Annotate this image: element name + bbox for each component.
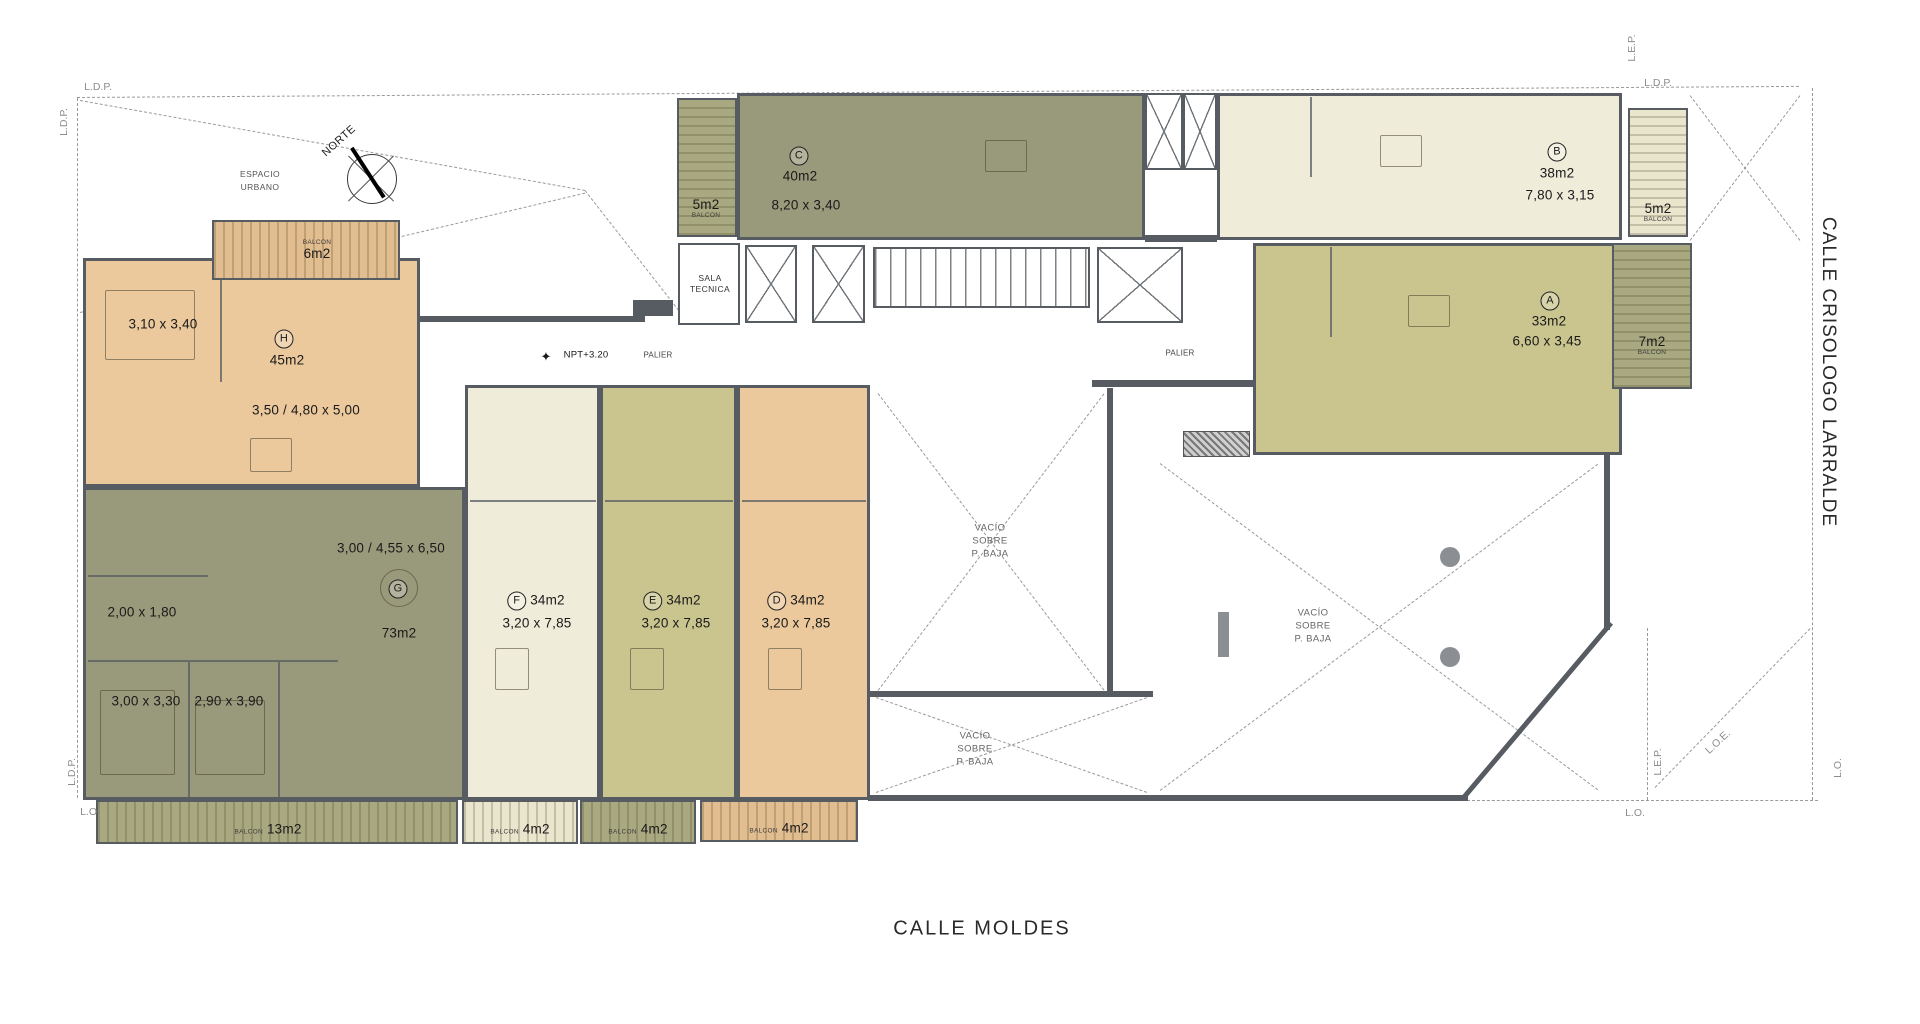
unit-a-block bbox=[1253, 243, 1622, 455]
unit-e-letter: E bbox=[643, 592, 662, 611]
wall-divider bbox=[220, 262, 222, 382]
wall-divider bbox=[742, 500, 866, 502]
unit-e-dims: 3,20 x 7,85 bbox=[641, 616, 710, 631]
unit-e-area: 34m2 bbox=[666, 593, 701, 608]
boundary-label-lo-bottom-left: L.O. bbox=[80, 806, 100, 818]
balcony-tag: BALCON bbox=[692, 212, 721, 219]
wall bbox=[1092, 380, 1254, 387]
balcony-a-label: 7m2 BALCON bbox=[1638, 334, 1667, 356]
unit-c-badge: C bbox=[790, 147, 809, 166]
wall bbox=[870, 691, 1153, 697]
espacio-urbano-label: ESPACIO URBANO bbox=[240, 168, 280, 194]
sala-line: SALA bbox=[690, 273, 730, 284]
elevator-icon bbox=[745, 245, 797, 323]
unit-d-area: 34m2 bbox=[790, 593, 825, 608]
balcony-tag: BALCON bbox=[608, 829, 637, 836]
unit-a-letter: A bbox=[1541, 292, 1560, 311]
balcony-area: 7m2 bbox=[1638, 334, 1667, 349]
balcony-tag: BALCON bbox=[303, 239, 332, 246]
balcony-area: 4m2 bbox=[641, 822, 668, 837]
void-label-1: VACÍO SOBRE P. BAJA bbox=[972, 522, 1009, 561]
unit-e-badge: E 34m2 bbox=[643, 592, 701, 611]
boundary-label-lo-bottom-right: L.O. bbox=[1625, 807, 1645, 819]
wall-divider bbox=[278, 662, 280, 798]
shaft-icon bbox=[1145, 93, 1183, 170]
balcony-a bbox=[1612, 243, 1692, 389]
unit-c-block bbox=[737, 93, 1145, 240]
unit-f-badge: F 34m2 bbox=[507, 592, 565, 611]
espacio-line: ESPACIO bbox=[240, 168, 280, 181]
boundary-label-ldp-top-right: L.D.P. bbox=[1644, 77, 1672, 89]
elevator-icon bbox=[1097, 247, 1183, 323]
balcony-area: 5m2 bbox=[1644, 201, 1673, 216]
sala-tecnica-label: SALA TECNICA bbox=[690, 273, 730, 295]
unit-g-room-dims: 2,00 x 1,80 bbox=[107, 605, 176, 620]
unit-f-area: 34m2 bbox=[530, 593, 565, 608]
balcony-c-label: 5m2 BALCON bbox=[692, 197, 721, 219]
compass-label: NORTE bbox=[320, 123, 358, 159]
void-line: SOBRE bbox=[972, 535, 1009, 548]
shaft-icon bbox=[1183, 93, 1217, 170]
column-dot bbox=[1440, 547, 1460, 567]
unit-f-letter: F bbox=[507, 592, 526, 611]
unit-g-letter: G bbox=[389, 580, 408, 599]
balcony-area: 4m2 bbox=[782, 821, 809, 836]
street-name-bottom: CALLE MOLDES bbox=[893, 918, 1070, 941]
unit-a-dims: 6,60 x 3,45 bbox=[1512, 334, 1581, 349]
balcony-d-label: BALCON 4m2 bbox=[749, 821, 808, 836]
boundary-line-lep bbox=[1647, 628, 1648, 800]
table bbox=[495, 648, 529, 690]
npt-level-label: NPT+3.20 bbox=[564, 350, 609, 361]
wall-divider bbox=[88, 660, 338, 662]
column bbox=[1218, 612, 1229, 657]
void-line: VACÍO bbox=[1295, 607, 1332, 620]
unit-b-letter: B bbox=[1548, 143, 1567, 162]
unit-g-room-dims: 3,00 x 3,30 bbox=[111, 694, 180, 709]
column-dot bbox=[1440, 647, 1460, 667]
elevator-icon bbox=[812, 245, 865, 323]
wall-divider bbox=[1310, 97, 1312, 177]
void-line: VACÍO bbox=[957, 730, 994, 743]
wall bbox=[420, 316, 645, 322]
void-label-3: VACÍO SOBRE P. BAJA bbox=[1295, 607, 1332, 646]
wall-hatched bbox=[1183, 431, 1250, 457]
unit-d-dims: 3,20 x 7,85 bbox=[761, 616, 830, 631]
wall-divider bbox=[88, 575, 208, 577]
unit-c-letter: C bbox=[790, 147, 809, 166]
balcony-tag: BALCON bbox=[749, 828, 778, 835]
floor-plan: NORTE 3,10 x 3,40 H 45m2 3,50 / 4,80 x 5… bbox=[0, 0, 1920, 1024]
void-line: VACÍO bbox=[972, 522, 1009, 535]
boundary-label-ldp-bottom-left: L.D.P. bbox=[66, 758, 78, 786]
bed bbox=[195, 700, 265, 775]
boundary-label-ldp-left: L.D.P. bbox=[58, 108, 70, 136]
balcony-tag: BALCON bbox=[234, 829, 263, 836]
balcony-g-label: BALCON 13m2 bbox=[234, 822, 301, 837]
boundary-line-left bbox=[77, 98, 78, 798]
palier-right-label: PALIER bbox=[1165, 349, 1194, 358]
espacio-line: URBANO bbox=[240, 181, 280, 194]
unit-f-dims: 3,20 x 7,85 bbox=[502, 616, 571, 631]
unit-g-area: 73m2 bbox=[382, 626, 417, 641]
wall bbox=[633, 300, 673, 316]
wall bbox=[868, 795, 1468, 801]
balcony-area: 13m2 bbox=[267, 822, 302, 837]
unit-a-badge: A bbox=[1541, 292, 1560, 311]
sala-line: TECNICA bbox=[690, 284, 730, 295]
npt-marker-icon: ✦ bbox=[540, 349, 551, 365]
unit-b-area: 38m2 bbox=[1540, 166, 1575, 181]
wall bbox=[1604, 455, 1610, 630]
void-line: SOBRE bbox=[957, 743, 994, 756]
balcony-f-label: BALCON 4m2 bbox=[490, 822, 549, 837]
balcony-area: 4m2 bbox=[523, 822, 550, 837]
unit-c-dims: 8,20 x 3,40 bbox=[771, 198, 840, 213]
void-line: SOBRE bbox=[1295, 620, 1332, 633]
balcony-area: 6m2 bbox=[303, 246, 332, 261]
boundary-label-lep-top-right: L.E.P. bbox=[1626, 34, 1638, 61]
boundary-line-bottom-right bbox=[1462, 800, 1818, 801]
balcony-b-label: 5m2 BALCON bbox=[1644, 201, 1673, 223]
unit-b-dims: 7,80 x 3,15 bbox=[1525, 188, 1594, 203]
table bbox=[1408, 295, 1450, 327]
unit-d-badge: D 34m2 bbox=[767, 592, 825, 611]
void-line: P. BAJA bbox=[972, 548, 1009, 561]
unit-g-badge: G bbox=[389, 580, 408, 599]
street-name-right: CALLE CRISOLOGO LARRALDE bbox=[1817, 217, 1839, 527]
table bbox=[250, 438, 292, 472]
table bbox=[985, 140, 1027, 172]
unit-h-letter: H bbox=[275, 330, 294, 349]
wall-divider bbox=[188, 662, 190, 798]
unit-g-dims: 3,00 / 4,55 x 6,50 bbox=[337, 541, 445, 556]
balcony-h-label: BALCON 6m2 bbox=[303, 239, 332, 261]
wall bbox=[1145, 235, 1217, 242]
boundary-label-lep-bottom-right: L.E.P. bbox=[1652, 748, 1664, 775]
wall-divider bbox=[470, 500, 596, 502]
wall-divider bbox=[1330, 247, 1332, 337]
boundary-line-loe bbox=[1655, 628, 1811, 788]
palier-left-label: PALIER bbox=[643, 351, 672, 360]
void-line: P. BAJA bbox=[1295, 633, 1332, 646]
unit-d-letter: D bbox=[767, 592, 786, 611]
table bbox=[630, 648, 664, 690]
boundary-label-lo-right: L.O. bbox=[1832, 758, 1844, 778]
balcony-tag: BALCON bbox=[1638, 349, 1667, 356]
void-label-2: VACÍO SOBRE P. BAJA bbox=[957, 730, 994, 769]
table bbox=[768, 648, 802, 690]
unit-a-area: 33m2 bbox=[1532, 314, 1567, 329]
balcony-tag: BALCON bbox=[1644, 216, 1673, 223]
unit-g-room-dims: 2,90 x 3,90 bbox=[194, 694, 263, 709]
staircase bbox=[873, 247, 1090, 308]
table bbox=[1380, 135, 1422, 167]
boundary-label-ldp-top: L.D.P. bbox=[84, 81, 112, 93]
unit-b-badge: B bbox=[1548, 143, 1567, 162]
wall-divider bbox=[605, 500, 733, 502]
unit-h-badge: H bbox=[275, 330, 294, 349]
unit-h-room-dims: 3,10 x 3,40 bbox=[128, 317, 197, 332]
balcony-e-label: BALCON 4m2 bbox=[608, 822, 667, 837]
balcony-area: 5m2 bbox=[692, 197, 721, 212]
boundary-line-right bbox=[1812, 88, 1813, 800]
unit-c-area: 40m2 bbox=[783, 169, 818, 184]
wall-angled bbox=[1460, 621, 1613, 801]
unit-h-area: 45m2 bbox=[270, 353, 305, 368]
balcony-tag: BALCON bbox=[490, 829, 519, 836]
wall bbox=[1107, 388, 1113, 694]
void-line: P. BAJA bbox=[957, 756, 994, 769]
unit-h-dims: 3,50 / 4,80 x 5,00 bbox=[252, 403, 360, 418]
